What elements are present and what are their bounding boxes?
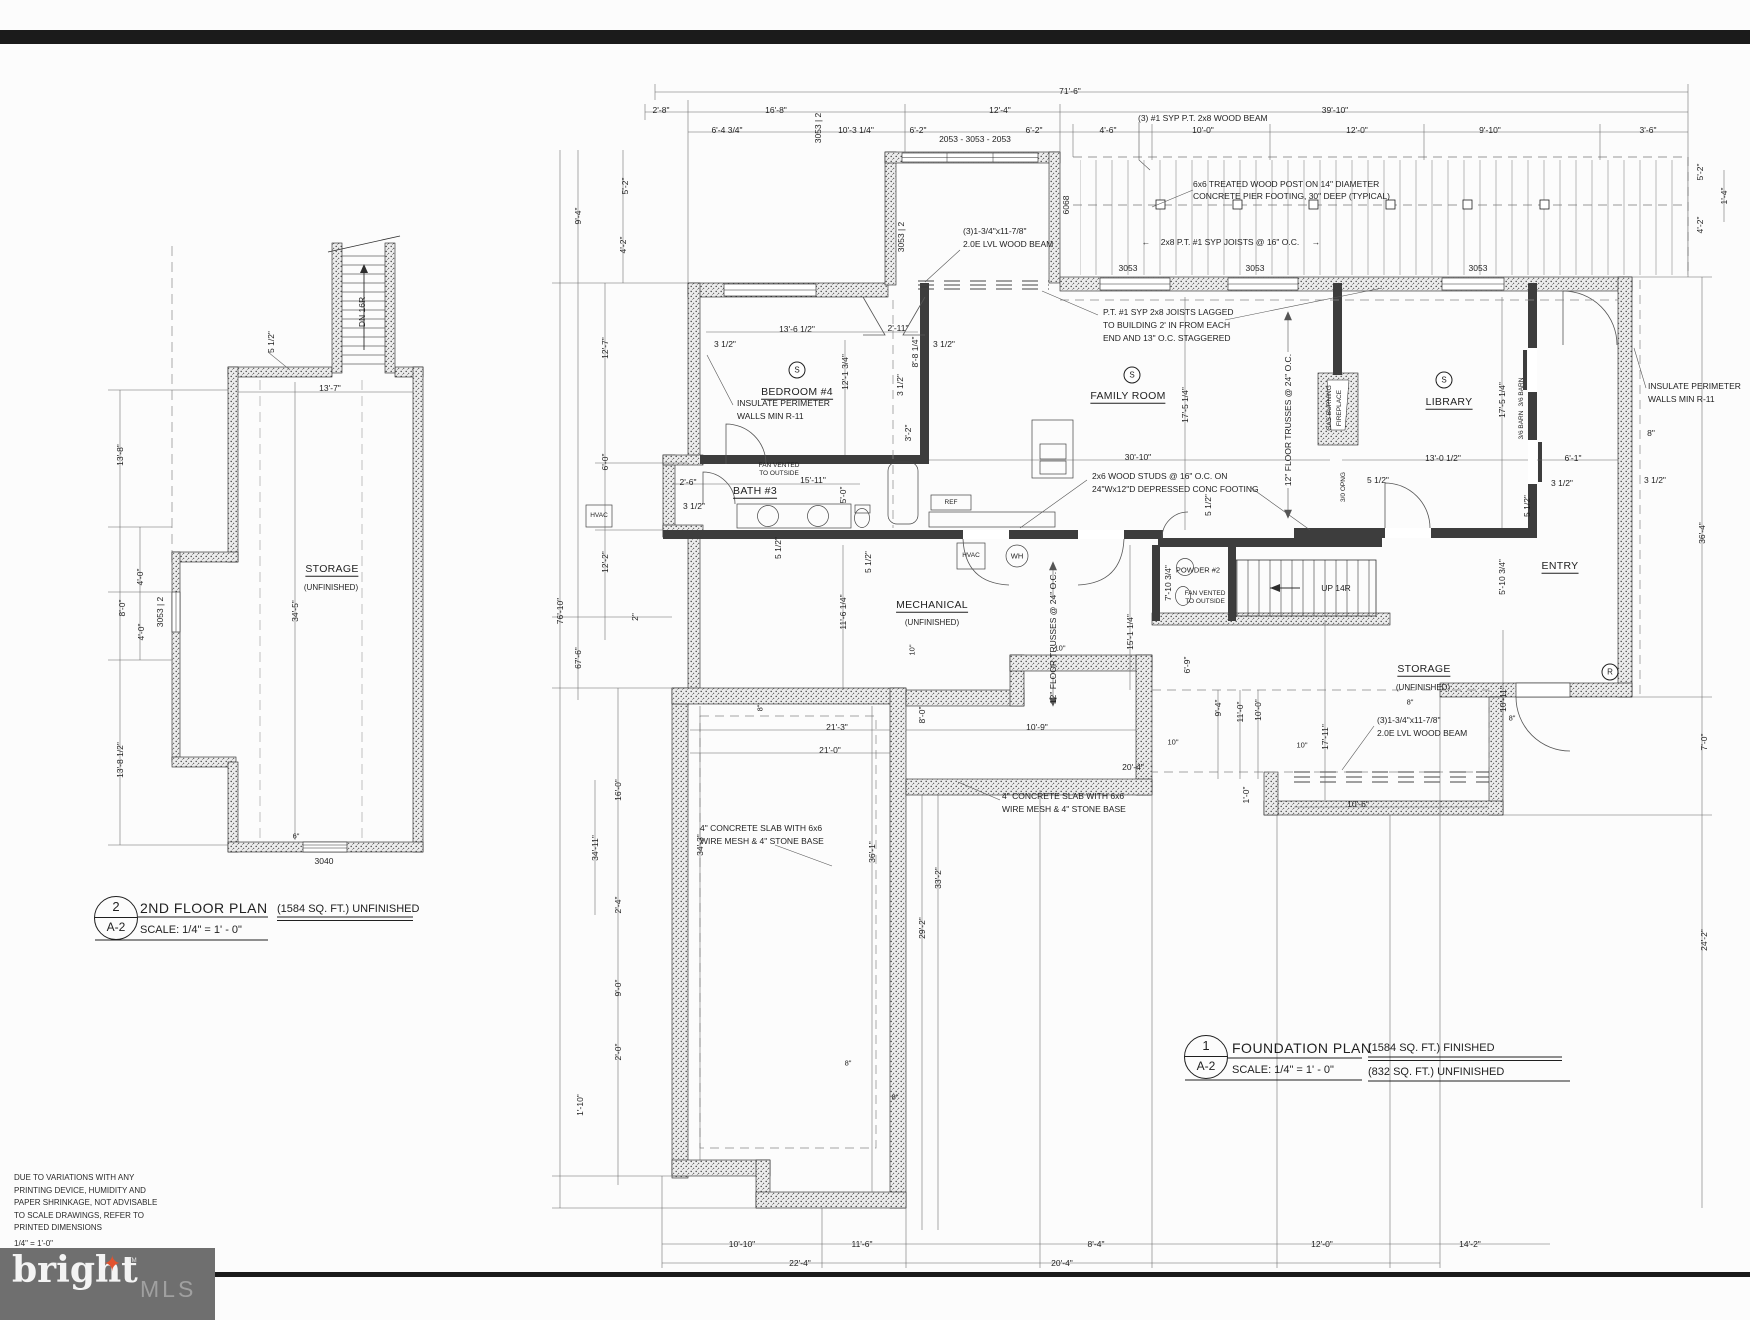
detail-number: 2 — [95, 897, 137, 918]
dim-label: 9'-4" — [1214, 700, 1223, 717]
dim-label: 9'-0" — [614, 980, 623, 997]
note-deck-joists: 2x8 P.T. #1 SYP JOISTS @ 16" O.C. — [1161, 238, 1299, 247]
note-fireplace: FIREPLACE — [1337, 390, 1344, 426]
dim-label: 3 1/2" — [1551, 479, 1573, 488]
dim-label: 6'-2" — [910, 126, 927, 135]
note-lvl-beam: 2.0E LVL WOOD BEAM — [1377, 729, 1467, 738]
dim-label: 33'-2" — [934, 867, 943, 889]
note-lvl-beam: (3)1-3/4"x11-7/8" — [963, 227, 1027, 236]
dim-label: 10" — [1296, 741, 1307, 749]
dim-label: 12'-2" — [601, 551, 610, 573]
dim-label: 10'-11" — [1499, 686, 1508, 712]
water-heater-label: WH — [1011, 552, 1024, 560]
hvac-label: HVAC — [962, 553, 980, 560]
arrow-right-icon: → — [1312, 238, 1321, 247]
dim-label: 9'-4" — [574, 208, 583, 225]
dim-label: 5 1/2" — [864, 551, 873, 573]
dim-label: 13'-7" — [319, 384, 341, 393]
note-floor-trusses: 12" FLOOR TRUSSES @ 24" O.C. — [1284, 354, 1293, 486]
dim-label: 6" — [293, 832, 300, 840]
detail-number: 1 — [1185, 1036, 1227, 1057]
dim-label: 22'-4" — [789, 1259, 811, 1268]
dim-label: 34'-5" — [291, 600, 300, 622]
dim-label: 4'-0" — [137, 624, 146, 641]
print-disclaimer: DUE TO VARIATIONS WITH ANY PRINTING DEVI… — [14, 1172, 184, 1235]
window-label: 3053 | 2 — [897, 222, 906, 253]
dim-label: 12'-4" — [989, 106, 1011, 115]
stair-label-dn: DN 16R — [358, 297, 367, 327]
dim-label: 12'-7" — [601, 337, 610, 359]
detail-bubble-2: 2 A-2 — [94, 896, 138, 940]
window-label: 3053 — [1246, 264, 1265, 273]
dim-label: 21'-0" — [819, 746, 841, 755]
dim-label: 5 1/2" — [1204, 494, 1213, 516]
note-fan-vented: FAN VENTED — [1185, 591, 1226, 598]
dim-label: 20'-4" — [1122, 763, 1144, 772]
dim-label: 36'-4" — [1698, 522, 1707, 544]
trademark-symbol: TM — [128, 1258, 137, 1264]
dim-label: 5'-2" — [1696, 164, 1705, 181]
note-studs: 2x6 WOOD STUDS @ 16" O.C. ON — [1092, 472, 1227, 481]
dim-label: 13'-6 1/2" — [779, 325, 815, 334]
note-slab: 4" CONCRETE SLAB WITH 6x6 — [1002, 792, 1124, 801]
note-floor-trusses: 12" FLOOR TRUSSES @ 24" O.C. — [1049, 572, 1058, 704]
dim-label: 2'-11" — [887, 324, 908, 333]
dim-label: 21'-3" — [826, 723, 848, 732]
smoke-detector-icon: S — [1436, 372, 1453, 389]
room-label-powder: POWDER #2 — [1176, 566, 1220, 574]
room-sub-storage-2f: (UNFINISHED) — [304, 584, 358, 592]
dim-label: 3 1/2" — [933, 340, 955, 349]
room-label-library: LIBRARY — [1426, 397, 1473, 410]
refrigerator-label: REF — [945, 500, 958, 507]
dim-label: 10'-9" — [1026, 723, 1048, 732]
room-label-bath3: BATH #3 — [733, 486, 777, 499]
dim-label: 3'-2" — [904, 425, 913, 442]
disclaimer-line: PAPER SHRINKAGE, NOT ADVISABLE — [14, 1197, 184, 1210]
stair-label-up: UP 14R — [1321, 584, 1351, 593]
sheet-scale-note: 1/4" = 1'-0" — [14, 1240, 53, 1248]
smoke-detector-icon: S — [1124, 367, 1141, 384]
note-lagged-joists: END AND 13" O.C. STAGGERED — [1103, 334, 1231, 343]
dim-label: 8" — [756, 705, 764, 712]
dim-label: 17'-5 1/4" — [1498, 382, 1507, 418]
dim-label: 5 1/2" — [1367, 476, 1389, 485]
star-icon: ✦ — [103, 1254, 121, 1276]
dim-label: 7'-0" — [1700, 734, 1709, 751]
dim-label: 15'-1 1/4" — [1126, 614, 1135, 650]
plan-title-foundation: FOUNDATION PLAN — [1232, 1041, 1371, 1055]
disclaimer-line: DUE TO VARIATIONS WITH ANY — [14, 1172, 184, 1185]
window-label: 3040 — [315, 857, 334, 866]
dim-label: 13'-0 1/2" — [1425, 454, 1461, 463]
room-label-mechanical: MECHANICAL — [896, 600, 968, 613]
dim-label: 20'-4" — [1051, 1259, 1073, 1268]
dim-label: 10" — [1054, 644, 1065, 652]
window-label: 3053 — [1469, 264, 1488, 273]
window-label: 3053 — [1119, 264, 1138, 273]
logo-suffix-text: MLS — [140, 1278, 196, 1301]
dim-label: 17'-5 1/4" — [1181, 387, 1190, 423]
note-barn-door: 3/6 BARN — [1519, 378, 1526, 407]
dim-label: 3 1/2" — [1644, 476, 1666, 485]
dim-label: 34'-3" — [696, 834, 705, 856]
note-post: 6x6 TREATED WOOD POST ON 14" DIAMETER — [1193, 180, 1379, 189]
dim-label: 24'-2" — [1700, 929, 1709, 951]
dim-label: 8" — [845, 1059, 852, 1067]
dim-label: 5 1/2" — [267, 331, 276, 353]
dim-label: 8'-0" — [118, 600, 127, 617]
note-opening: 3/0 OPNG — [1341, 472, 1348, 502]
plan-title-2f: 2ND FLOOR PLAN — [140, 901, 268, 915]
dim-label: 13'-8 1/2" — [116, 742, 125, 778]
note-post: CONCRETE PIER FOOTING, 30" DEEP (TYPICAL… — [1193, 192, 1390, 201]
disclaimer-line: PRINTED DIMENSIONS — [14, 1222, 184, 1235]
plan-scale-2f: SCALE: 1/4" = 1' - 0" — [140, 925, 242, 936]
dim-label: 12'-0" — [1311, 1240, 1333, 1249]
note-lagged-joists: TO BUILDING 2' IN FROM EACH — [1103, 321, 1230, 330]
dim-label: 8'-4" — [1088, 1240, 1105, 1249]
door-label: 6068 — [1062, 196, 1071, 215]
plan-area-unfinished: (832 SQ. FT.) UNFINISHED — [1368, 1067, 1504, 1078]
dim-label: 14'-2" — [1459, 1240, 1481, 1249]
dim-label: 12'-1 3/4" — [841, 354, 850, 390]
dim-label: 6'-2" — [1026, 126, 1043, 135]
dim-label: 16'-8" — [765, 106, 787, 115]
dim-label: 1'-4" — [1720, 188, 1729, 205]
dim-label: 4'-2" — [1696, 217, 1705, 234]
dim-label: 5'-10 3/4" — [1498, 559, 1507, 595]
dim-label: 8" — [1509, 714, 1516, 722]
hvac-label: HVAC — [590, 513, 608, 520]
dim-label: 10'-3 1/4" — [838, 126, 874, 135]
dim-label: 1'-0" — [1242, 787, 1251, 804]
dim-label: 5'-2" — [621, 178, 630, 195]
note-slab: WIRE MESH & 4" STONE BASE — [700, 837, 824, 846]
window-label: 3053 | 2 — [814, 113, 823, 144]
text-overlay: STORAGE (UNFINISHED) DN 16R 3053 | 2 304… — [0, 0, 1750, 1320]
note-insulate: INSULATE PERIMETER — [1648, 382, 1741, 391]
room-label-storage-fd: STORAGE — [1397, 664, 1450, 677]
dim-label: 17'-11" — [1321, 724, 1330, 750]
dim-label: 2'-0" — [614, 1044, 623, 1061]
note-fan-vented: TO OUTSIDE — [1185, 599, 1225, 606]
note-slab: WIRE MESH & 4" STONE BASE — [1002, 805, 1126, 814]
note-insulate: WALLS MIN R-11 — [737, 412, 804, 421]
dim-label: 6'-9" — [1183, 657, 1192, 674]
room-sub-storage-fd: (UNFINISHED) — [1396, 684, 1450, 692]
note-insulate: WALLS MIN R-11 — [1648, 395, 1715, 404]
dim-label: 3'-6" — [1640, 126, 1657, 135]
window-label: 3053 | 2 — [156, 597, 165, 628]
note-fireplace: GAS BURNING — [1327, 385, 1334, 431]
plan-scale-foundation: SCALE: 1/4" = 1' - 0" — [1232, 1065, 1334, 1076]
window-label: 2053 - 3053 - 2053 — [939, 135, 1011, 144]
dim-label: 3 1/2" — [896, 374, 905, 396]
note-fan-vented: FAN VENTED — [759, 463, 800, 470]
dim-label: 3 1/2" — [714, 340, 736, 349]
disclaimer-line: TO SCALE DRAWINGS, REFER TO — [14, 1210, 184, 1223]
dim-label: 10" — [908, 644, 916, 655]
dim-label: 16'-0" — [614, 779, 623, 801]
dim-label: 10'-0" — [1192, 126, 1214, 135]
dim-label: 8" — [1407, 698, 1414, 706]
room-label-family: FAMILY ROOM — [1090, 391, 1165, 404]
dim-label: 67'-6" — [574, 647, 583, 669]
note-slab: 4" CONCRETE SLAB WITH 6x6 — [700, 824, 822, 833]
dim-label: 8'-8 1/4" — [911, 336, 920, 367]
dim-label: 29'-2" — [918, 917, 927, 939]
dim-label: 2'-8" — [653, 106, 670, 115]
note-lvl-beam: 2.0E LVL WOOD BEAM — [963, 240, 1053, 249]
dim-label: 2'-6" — [680, 478, 697, 487]
note-wood-beam: (3) #1 SYP P.T. 2x8 WOOD BEAM — [1138, 114, 1268, 123]
brightmls-logo: bright ✦ TM MLS — [0, 1248, 215, 1320]
dim-label: 10'-0" — [1254, 699, 1263, 721]
dim-label: 13'-8" — [116, 444, 125, 466]
dim-label: 4'-6" — [1100, 126, 1117, 135]
dim-label: 39'-10" — [1322, 106, 1348, 115]
dim-label: 11'-6 1/4" — [839, 594, 848, 629]
dim-label: 71'-6" — [1059, 87, 1081, 96]
dim-label: 6'-4 3/4" — [711, 126, 742, 135]
dim-label: 2'-4" — [614, 897, 623, 914]
blueprint-sheet: STORAGE (UNFINISHED) DN 16R 3053 | 2 304… — [0, 0, 1750, 1320]
dim-label: 3 1/2" — [683, 502, 705, 511]
dim-label: 76'-10" — [556, 598, 565, 624]
dim-label: 4'-2" — [619, 237, 628, 254]
dim-label: 15'-11" — [800, 476, 826, 485]
smoke-detector-icon: S — [789, 362, 806, 379]
dim-label: 2" — [631, 613, 640, 621]
dim-label: 11'-6" — [851, 1240, 872, 1249]
dim-label: 12'-0" — [1346, 126, 1368, 135]
dim-label: 10" — [1167, 738, 1178, 746]
room-label-entry: ENTRY — [1542, 561, 1579, 574]
dim-label: 4'-0" — [136, 569, 145, 586]
dim-label: 5'-0" — [839, 487, 848, 504]
return-symbol-icon: R — [1602, 664, 1619, 681]
dim-label: 5 1/2" — [1523, 495, 1532, 517]
note-lvl-beam: (3)1-3/4"x11-7/8" — [1377, 716, 1441, 725]
note-studs: 24"Wx12"D DEPRESSED CONC FOOTING — [1092, 485, 1259, 494]
dim-label: 5 1/2" — [774, 537, 783, 559]
dim-label: 10'-6" — [1347, 800, 1369, 809]
note-barn-door: 3/6 BARN — [1519, 411, 1526, 440]
dim-label: 8'-0" — [918, 707, 927, 724]
dim-label: 11'-0" — [1236, 701, 1245, 722]
room-label-storage-2f: STORAGE — [305, 564, 358, 577]
dim-label: 9'-10" — [1479, 126, 1501, 135]
dim-label: 6'-1" — [1565, 454, 1582, 463]
note-fan-vented: TO OUTSIDE — [759, 471, 799, 478]
dim-label: 36'-1" — [868, 841, 877, 863]
sheet-number: A-2 — [1185, 1057, 1227, 1076]
dim-label: 8" — [892, 1093, 899, 1101]
plan-area-finished: (1584 SQ. FT.) FINISHED — [1368, 1043, 1495, 1054]
dim-label: 30'-10" — [1125, 453, 1151, 462]
dim-label: 7'-10 3/4" — [1164, 565, 1173, 601]
note-insulate: INSULATE PERIMETER — [737, 399, 830, 408]
note-lagged-joists: P.T. #1 SYP 2x8 JOISTS LAGGED — [1103, 308, 1234, 317]
dim-label: 10'-10" — [729, 1240, 755, 1249]
arrow-left-icon: ← — [1142, 238, 1151, 247]
dim-label: 34'-11" — [591, 835, 600, 861]
sheet-number: A-2 — [95, 918, 137, 937]
detail-bubble-1: 1 A-2 — [1184, 1035, 1228, 1079]
dim-label: 6'-0" — [601, 454, 610, 471]
disclaimer-line: PRINTING DEVICE, HUMIDITY AND — [14, 1185, 184, 1198]
plan-area-2f: (1584 SQ. FT.) UNFINISHED — [277, 904, 419, 915]
dim-label: 8" — [1647, 429, 1655, 438]
room-sub-mechanical: (UNFINISHED) — [905, 619, 959, 627]
dim-label: 1'-10" — [576, 1094, 585, 1116]
